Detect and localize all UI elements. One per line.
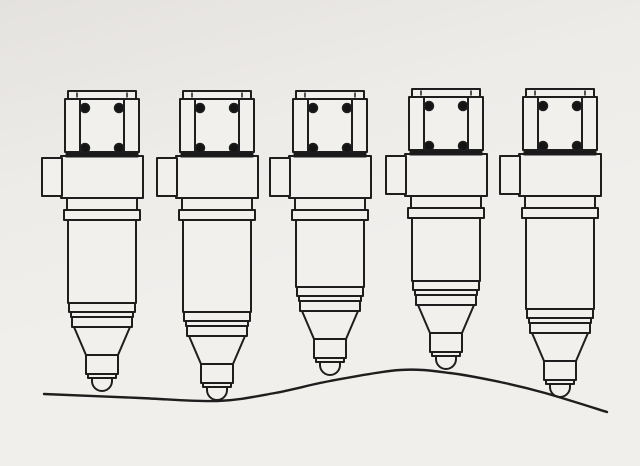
nozzle-band-lower: [416, 295, 476, 305]
injector-body: [519, 154, 601, 196]
nozzle-tip-cylinder: [544, 361, 576, 380]
nozzle-taper: [532, 333, 588, 361]
clamp-flange-left: [523, 97, 538, 150]
nozzle-tip-dome: [207, 387, 227, 400]
clamp-bolt-icon: [309, 144, 318, 153]
injector-neck: [411, 196, 481, 208]
clamp-bolt-icon: [539, 102, 548, 111]
nozzle-tip-dome: [320, 362, 340, 375]
nozzle-taper: [302, 311, 358, 339]
clamp-dark-bar: [294, 152, 366, 157]
clamp-dark-bar: [181, 152, 253, 157]
clamp-flange-right: [239, 99, 254, 152]
injector-neck: [295, 198, 365, 210]
nozzle-band-lower: [300, 301, 360, 311]
injector-collar-ring: [292, 210, 368, 220]
injector-neck: [525, 196, 595, 208]
injector-body: [405, 154, 487, 196]
clamp-bolt-icon: [425, 142, 434, 151]
clamp-flange-right: [352, 99, 367, 152]
injector-neck: [182, 198, 252, 210]
clamp-cap: [68, 91, 136, 99]
injector-side-tab: [270, 158, 290, 196]
clamp-bolt-icon: [459, 102, 468, 111]
injector-neck: [67, 198, 137, 210]
clamp-bolt-icon: [425, 102, 434, 111]
nozzle-tip-cylinder: [314, 339, 346, 358]
clamp-bolt-icon: [196, 104, 205, 113]
injector-body: [176, 156, 258, 198]
nozzle-band-upper: [69, 303, 135, 312]
nozzle-tip-cylinder: [86, 355, 118, 374]
injector-barrel: [526, 218, 594, 309]
injector-side-tab: [500, 156, 520, 194]
clamp-bolt-icon: [573, 102, 582, 111]
clamp-bolt-icon: [343, 104, 352, 113]
injector-barrel: [412, 218, 480, 281]
clamp-bolt-icon: [115, 144, 124, 153]
clamp-cap: [526, 89, 594, 97]
clamp-cap: [296, 91, 364, 99]
nozzle-taper: [74, 327, 130, 355]
clamp-bolt-icon: [343, 144, 352, 153]
injector-barrel: [183, 220, 251, 312]
nozzle-tip-cylinder: [430, 333, 462, 352]
clamp-flange-right: [582, 97, 597, 150]
clamp-bolt-icon: [81, 144, 90, 153]
nozzle-taper: [418, 305, 474, 333]
injector-body: [61, 156, 143, 198]
nozzle-band-lower: [530, 323, 590, 333]
clamp-dark-bar: [410, 150, 482, 155]
clamp-bolt-icon: [196, 144, 205, 153]
injector-side-tab: [157, 158, 177, 196]
nozzle-band-upper: [413, 281, 479, 290]
nozzle-taper: [189, 336, 245, 364]
injector-barrel: [68, 220, 136, 303]
clamp-bolt-icon: [459, 142, 468, 151]
scanned-figure-page: [0, 0, 640, 466]
injector-side-tab: [42, 158, 62, 196]
nozzle-band-lower: [72, 317, 132, 327]
clamp-flange-left: [180, 99, 195, 152]
clamp-bolt-icon: [539, 142, 548, 151]
nozzle-band-upper: [297, 287, 363, 296]
injector-body: [289, 156, 371, 198]
injector-side-tab: [386, 156, 406, 194]
clamp-bolt-icon: [573, 142, 582, 151]
clamp-bolt-icon: [81, 104, 90, 113]
nozzle-tip-dome: [92, 378, 112, 391]
clamp-flange-right: [468, 97, 483, 150]
nozzle-band-lower: [187, 326, 247, 336]
injector-collar-ring: [179, 210, 255, 220]
clamp-flange-right: [124, 99, 139, 152]
clamp-bolt-icon: [230, 104, 239, 113]
clamp-flange-left: [293, 99, 308, 152]
clamp-cap: [412, 89, 480, 97]
injector-collar-ring: [408, 208, 484, 218]
fuel-injector: [386, 89, 487, 369]
clamp-dark-bar: [66, 152, 138, 157]
injector-collar-ring: [64, 210, 140, 220]
ground-surface-line: [44, 370, 607, 412]
fuel-injector: [157, 91, 258, 400]
clamp-bolt-icon: [115, 104, 124, 113]
injector-collar-ring: [522, 208, 598, 218]
clamp-flange-left: [409, 97, 424, 150]
nozzle-band-upper: [184, 312, 250, 321]
injector-barrel: [296, 220, 364, 287]
nozzle-band-upper: [527, 309, 593, 318]
fuel-injector: [42, 91, 143, 391]
clamp-flange-left: [65, 99, 80, 152]
clamp-dark-bar: [524, 150, 596, 155]
clamp-bolt-icon: [309, 104, 318, 113]
nozzle-tip-cylinder: [201, 364, 233, 383]
fuel-injector: [270, 91, 371, 375]
clamp-cap: [183, 91, 251, 99]
clamp-bolt-icon: [230, 144, 239, 153]
diagram-canvas: [0, 0, 640, 466]
nozzle-tip-dome: [436, 356, 456, 369]
fuel-injector: [500, 89, 601, 397]
